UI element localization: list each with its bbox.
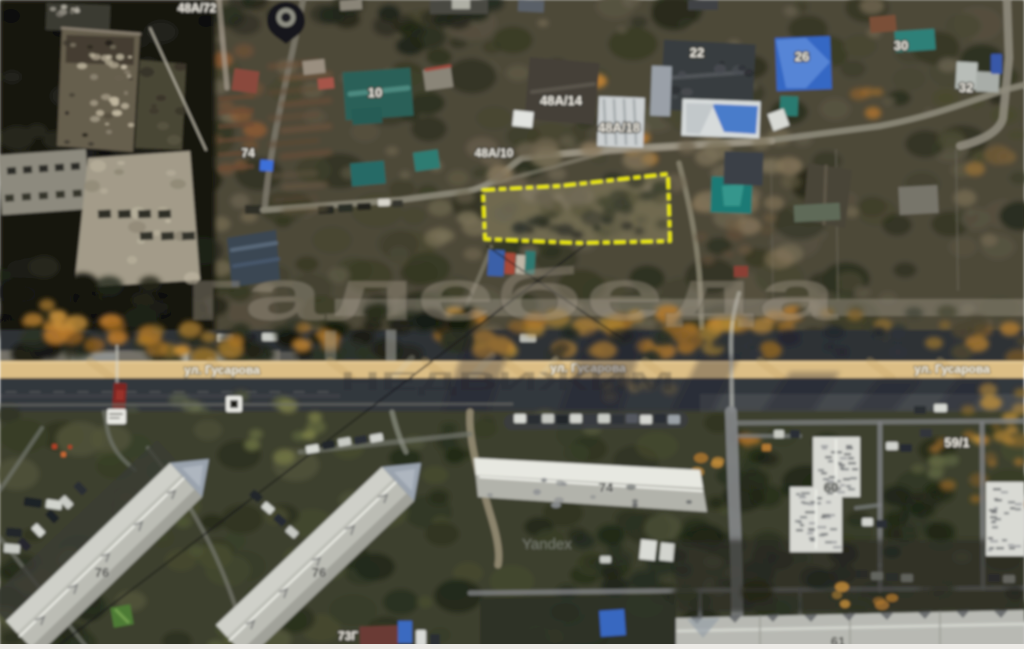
svg-text:48А/18: 48А/18 [598, 120, 640, 135]
svg-text:26: 26 [795, 49, 809, 64]
svg-text:60: 60 [824, 480, 838, 495]
svg-text:НЕДВИЖИМ: НЕДВИЖИМ [340, 366, 675, 396]
svg-text:10: 10 [368, 85, 382, 100]
svg-text:74: 74 [599, 480, 614, 495]
svg-text:48А/72: 48А/72 [178, 1, 217, 15]
svg-text:ул. Гусарова: ул. Гусарова [914, 362, 990, 376]
svg-text:32: 32 [959, 80, 973, 95]
svg-text:73Г: 73Г [338, 629, 358, 643]
svg-text:76: 76 [312, 565, 326, 580]
svg-text:30: 30 [894, 38, 908, 53]
svg-text:48А/14: 48А/14 [540, 93, 583, 108]
svg-text:ул. Гусарова: ул. Гусарова [184, 363, 260, 377]
svg-text:22: 22 [690, 45, 704, 60]
svg-text:59/1: 59/1 [944, 435, 969, 450]
svg-text:76: 76 [95, 565, 109, 580]
svg-text:74: 74 [241, 146, 255, 160]
svg-text:48А/10: 48А/10 [475, 146, 514, 160]
svg-text:галебеда: галебеда [183, 253, 840, 336]
svg-text:Yandex: Yandex [522, 536, 572, 553]
